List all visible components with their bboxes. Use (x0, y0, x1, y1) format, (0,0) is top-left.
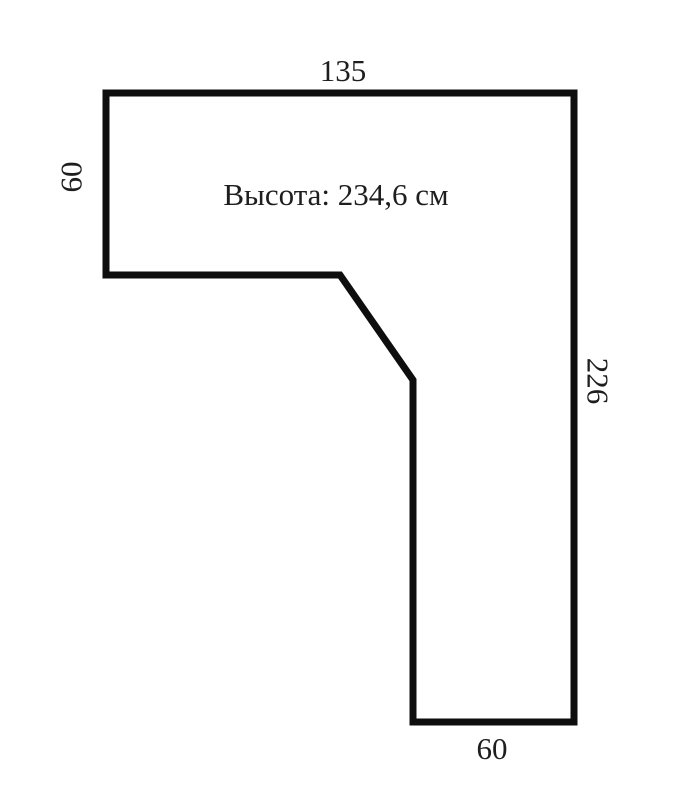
dimension-top-label: 135 (320, 53, 367, 88)
diagram-canvas: 135 60 Высота: 234,6 см 226 60 (0, 0, 690, 800)
height-note: Высота: 234,6 см (223, 177, 448, 212)
dimension-left-label: 60 (54, 162, 89, 193)
dimension-bottom-label: 60 (477, 731, 508, 766)
dimension-drawing: 135 60 Высота: 234,6 см 226 60 (0, 0, 690, 800)
dimension-right-label: 226 (581, 358, 616, 405)
